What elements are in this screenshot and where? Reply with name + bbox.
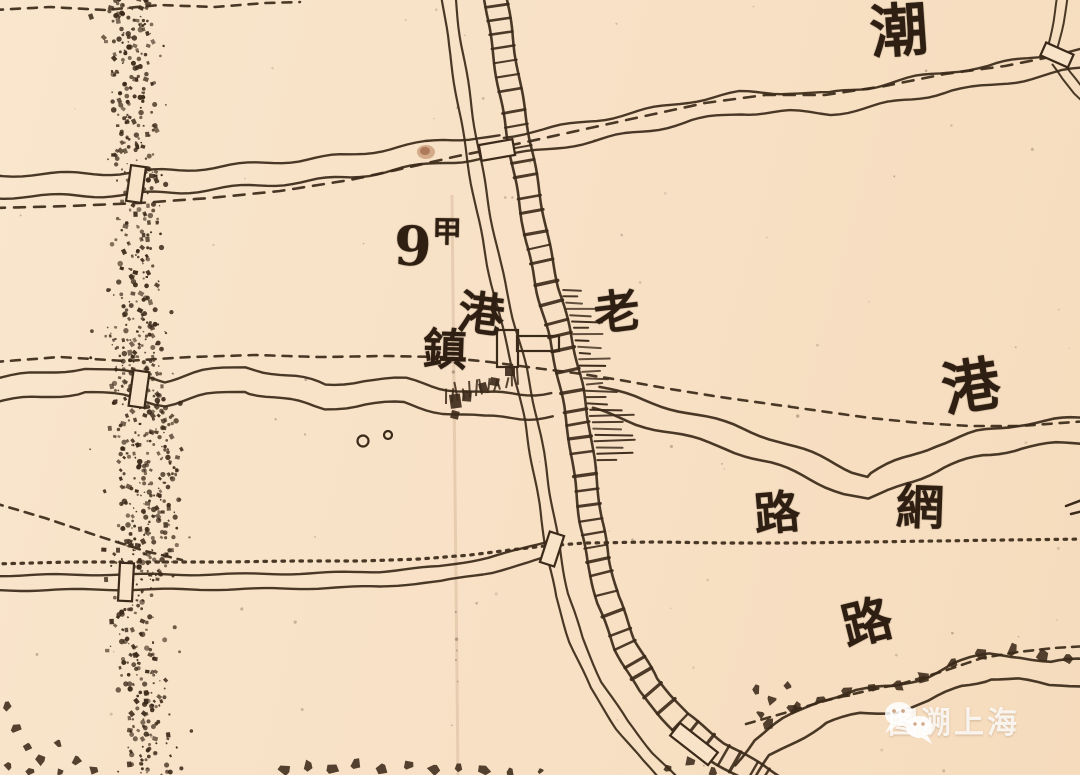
wechat-icon: [882, 698, 938, 746]
map-linework: [0, 0, 1080, 775]
label-road-wang: 網: [895, 483, 945, 533]
label-river-name-right: 港: [938, 354, 1004, 420]
label-plot-number: 9: [393, 218, 432, 273]
label-plot-suffix: 甲: [432, 218, 463, 249]
label-road-lu-mid: 路: [752, 488, 802, 538]
label-town-zhen: 鎮: [422, 328, 468, 374]
label-town-lao: 老: [591, 286, 642, 337]
label-river-name-top: 潮: [868, 0, 930, 62]
historical-map-canvas: 潮 9 甲 港 鎮 老 港 路 網 路 图溯上海: [0, 0, 1080, 775]
watermark: 图溯上海: [882, 698, 1020, 742]
